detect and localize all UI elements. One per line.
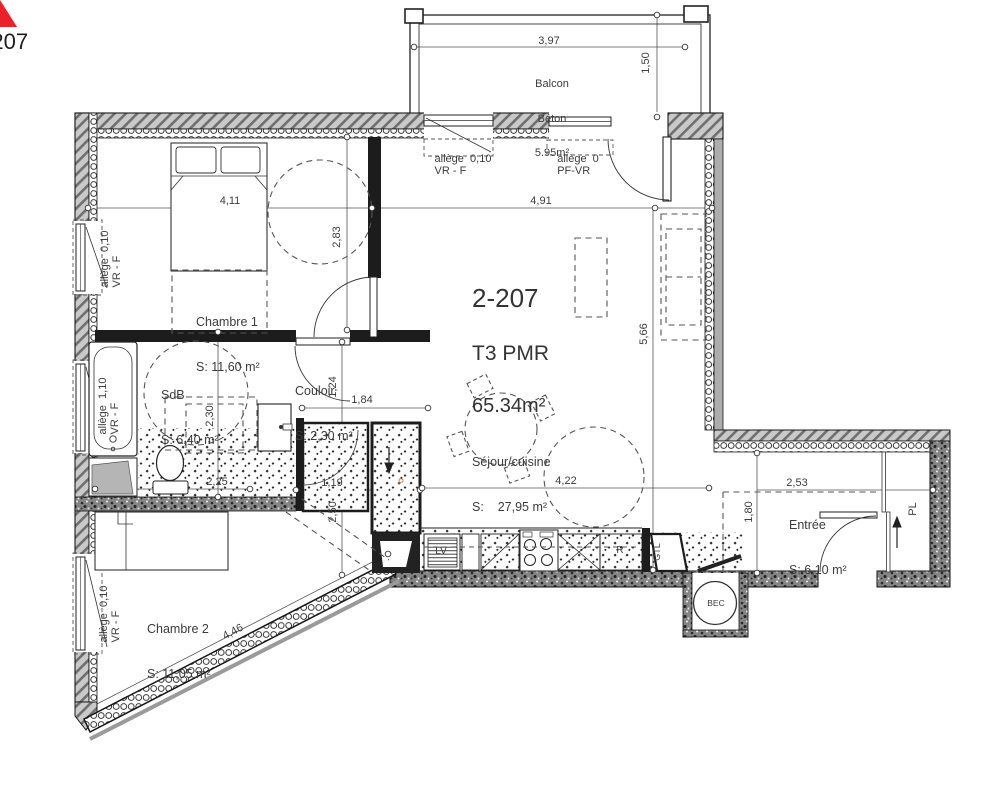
dimension-label: 3,97 (538, 35, 559, 47)
dimension-label: 2,30 (204, 405, 216, 426)
unit-number: 2-207 (472, 284, 551, 312)
appliance-label-lv: LV (435, 546, 447, 558)
closet-label-pl: PL (907, 502, 919, 515)
window-allege-note: allège 0 PF-VR (557, 153, 599, 177)
unit-marker-triangle-icon (0, 0, 17, 27)
entree-label: Entrée S: 6,10 m² (789, 488, 847, 608)
dimension-label: 1,80 (743, 501, 755, 522)
couloir-label: Couloir S: 2,30 m² (295, 354, 353, 474)
sdb-name: SdB (161, 388, 219, 403)
dimension-label: 4,11 (220, 195, 241, 207)
chambre2-area: S: 11,05 m² (147, 667, 211, 682)
gtl-label: GTL (651, 543, 663, 561)
chambre2-label: Chambre 2 S: 11,05 m² (147, 592, 211, 712)
unit-marker-number: 2-207 (0, 29, 498, 55)
appliance-label-r: R (616, 545, 623, 557)
unit-label: 2-207 T3 PMR 65.34m² Séjour/cuisine S: 2… (472, 254, 551, 545)
sdb-area: S: 6,40 m² (161, 433, 219, 448)
chambre2-name: Chambre 2 (147, 622, 211, 637)
entree-area: S: 6,10 m² (789, 563, 847, 578)
balcony-name-line2: Béton (535, 114, 569, 126)
window-allege-note: allège 0,10 VR - F (435, 153, 492, 177)
window-allege-note: allège 1,10 VR - F (97, 378, 121, 435)
floor-plan: Balcon Béton 5.95m² 2-207 T3 PMR 65.34m²… (0, 0, 996, 800)
dimension-label: 1,19 (321, 477, 342, 489)
sejour-area: S: 27,95 m² (472, 500, 551, 515)
window-allege-note: allège 0,10 VR - F (99, 231, 123, 288)
bec-label: BEC (707, 597, 724, 609)
unit-marker: 2-207 (0, 0, 498, 55)
chambre1-name: Chambre 1 (196, 315, 260, 330)
dimension-label: 1,24 (327, 376, 339, 397)
sejour-name: Séjour/cuisine (472, 455, 551, 470)
plan-labels: Balcon Béton 5.95m² 2-207 T3 PMR 65.34m²… (0, 0, 996, 800)
entree-name: Entrée (789, 518, 847, 533)
balcony-name-line1: Balcon (535, 79, 569, 91)
dimension-label: 4,22 (555, 475, 576, 487)
dimension-label: 2,50 (327, 501, 339, 522)
couloir-name: Couloir (295, 384, 353, 399)
dimension-label: 2,53 (786, 477, 807, 489)
couloir-area: S: 2,30 m² (295, 429, 353, 444)
unit-type: T3 PMR (472, 342, 551, 365)
unit-area: 65.34m² (472, 395, 551, 417)
dimension-label: 1,84 (351, 394, 372, 406)
dimension-label: 1,50 (640, 52, 652, 73)
dimension-label: 2,25 (206, 476, 227, 488)
dimension-label: 2,83 (331, 226, 343, 247)
dimension-label: 4,46 (221, 622, 246, 643)
duct-label-p: P (398, 476, 404, 488)
dimension-label: 4,91 (530, 195, 551, 207)
window-allege-note: allège 0,10 VR - F (98, 586, 122, 643)
dimension-label: 5,66 (638, 323, 650, 344)
